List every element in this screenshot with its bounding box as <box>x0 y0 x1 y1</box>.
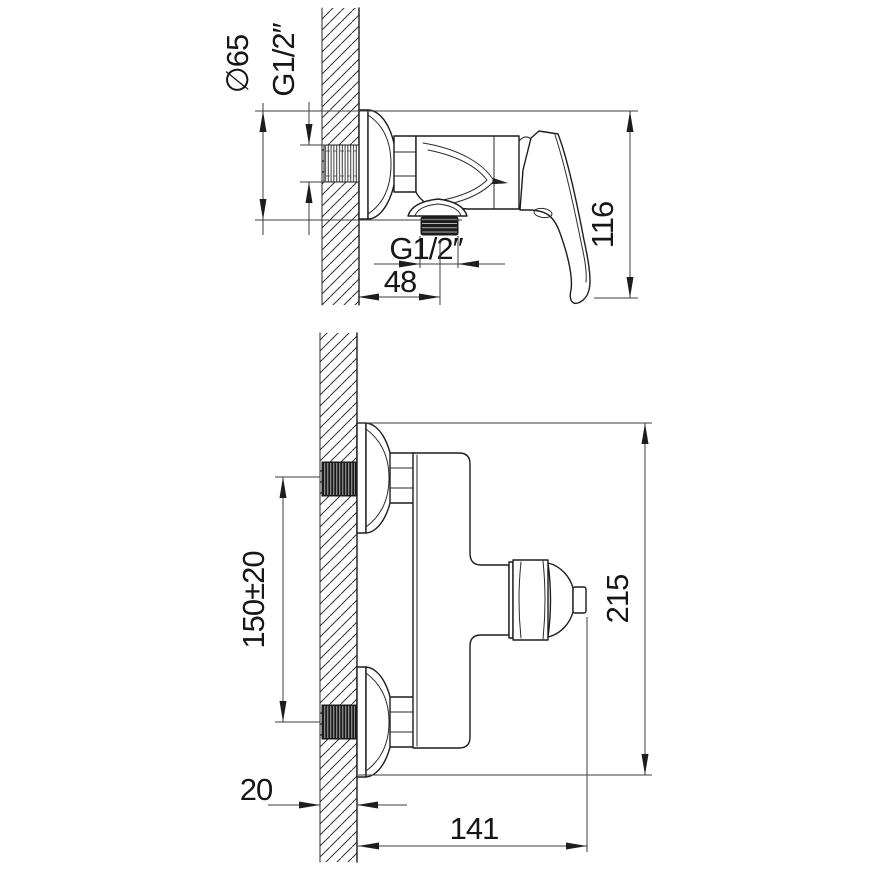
side-hex-nut <box>394 136 416 192</box>
side-escutcheon <box>359 110 396 219</box>
mixer-installation-drawing: ∅65 G1/2″ 116 G1/2″ <box>0 0 888 888</box>
side-inlet-thread <box>324 145 359 182</box>
dim-outlet-offset: 48 <box>384 264 416 299</box>
lower-hex-nut <box>390 697 414 747</box>
dim-outlet-thread: G1/2″ <box>389 231 463 266</box>
front-mixer-body <box>413 453 509 748</box>
front-wall-section <box>320 333 357 862</box>
upper-hex-nut <box>390 453 414 503</box>
dim-overall-height: 215 <box>600 575 635 624</box>
handle-end-cap <box>573 587 586 613</box>
dim-wall-thread: G1/2″ <box>266 22 301 96</box>
side-outlet <box>408 199 467 235</box>
wall-hatch <box>320 333 357 862</box>
side-valve-body <box>416 136 519 209</box>
front-handle <box>509 560 586 640</box>
dim-wall-thickness: 20 <box>240 772 273 807</box>
dim-escutcheon-diameter: ∅65 <box>220 35 255 94</box>
front-view: 150±20 215 20 141 <box>236 333 652 862</box>
side-view: ∅65 G1/2″ 116 G1/2″ <box>220 8 638 305</box>
side-handle-lever <box>519 131 590 303</box>
handle-barrel <box>513 560 548 640</box>
handle-cone <box>548 563 573 637</box>
dim-reach: 141 <box>450 811 499 846</box>
dim-inlet-spacing: 150±20 <box>236 551 271 649</box>
drawing-canvas: ∅65 G1/2″ 116 G1/2″ <box>0 0 888 888</box>
dim-body-height: 116 <box>585 202 620 248</box>
